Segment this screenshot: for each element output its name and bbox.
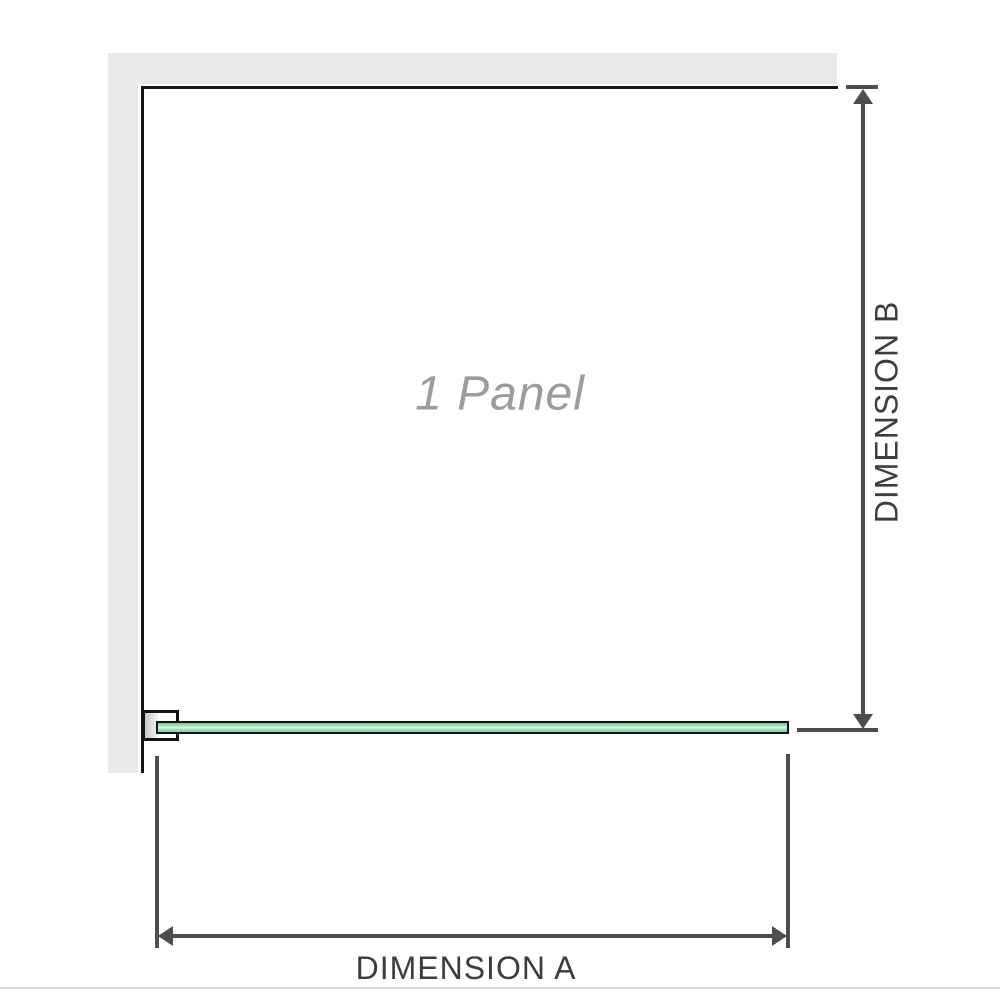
dimension-a-label: DIMENSION A xyxy=(296,950,636,987)
panel-count-label: 1 Panel xyxy=(415,367,585,422)
wall-top xyxy=(108,53,837,84)
bottom-divider-line xyxy=(0,987,1000,989)
wall-edge-top-line xyxy=(141,86,838,89)
dimension-b-label: DIMENSION B xyxy=(869,301,906,524)
arrow-down-icon xyxy=(853,714,873,729)
arrow-up-icon xyxy=(853,89,873,104)
wall-edge-left-line xyxy=(141,86,144,773)
dimension-a-line xyxy=(170,934,775,938)
arrow-left-icon xyxy=(158,926,173,946)
dimension-a-extension-right xyxy=(786,754,790,948)
wall-left xyxy=(108,53,138,773)
arrow-right-icon xyxy=(772,926,787,946)
dimension-a-extension-left xyxy=(155,756,159,948)
shower-panel-dimension-diagram: 1 Panel DIMENSION B DIMENSION A xyxy=(0,0,1000,1000)
dimension-b-line xyxy=(861,98,865,722)
glass-panel-bar xyxy=(156,721,789,734)
